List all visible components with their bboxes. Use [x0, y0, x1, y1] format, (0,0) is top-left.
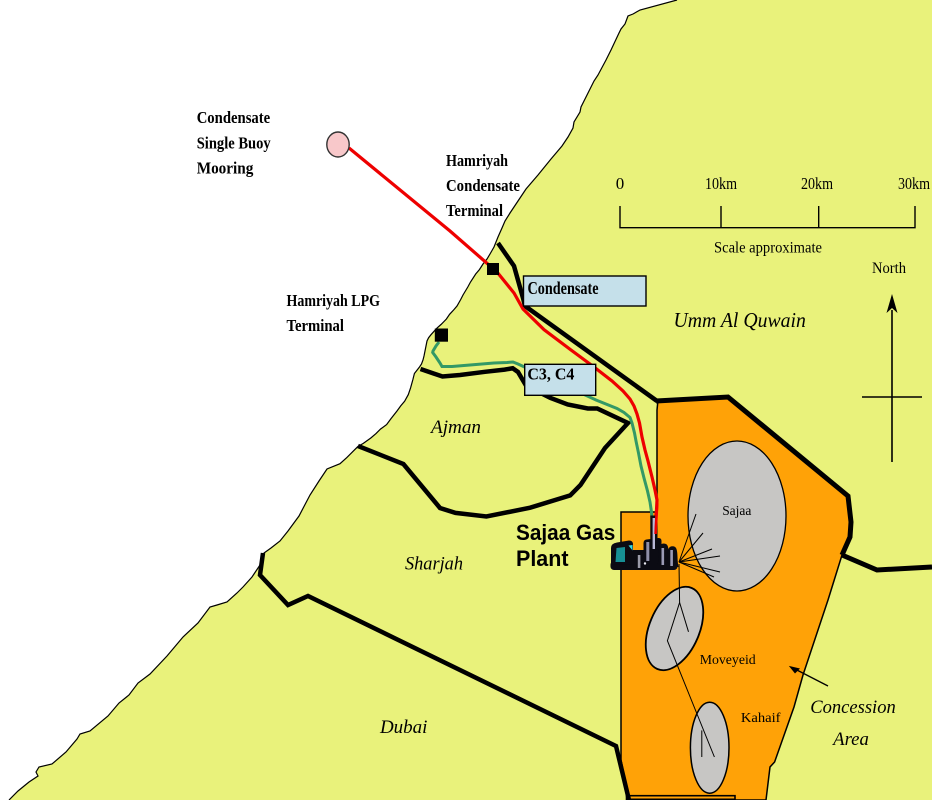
svg-text:C3, C4: C3, C4	[527, 365, 574, 384]
svg-text:Umm Al Quwain: Umm Al Quwain	[673, 308, 806, 332]
svg-text:Area: Area	[831, 729, 869, 750]
svg-text:30km: 30km	[898, 174, 930, 193]
svg-text:Moveyeid: Moveyeid	[700, 653, 756, 668]
svg-text:Ajman: Ajman	[429, 417, 481, 438]
svg-text:Plant: Plant	[516, 546, 569, 571]
svg-text:Hamriyah: Hamriyah	[446, 151, 508, 170]
svg-text:Condensate: Condensate	[528, 278, 599, 298]
svg-text:North: North	[872, 260, 906, 277]
svg-text:Mooring: Mooring	[197, 159, 254, 178]
svg-text:20km: 20km	[801, 174, 833, 193]
svg-text:Sajaa Gas: Sajaa Gas	[516, 520, 615, 545]
svg-text:0: 0	[616, 174, 625, 193]
svg-text:10km: 10km	[705, 174, 737, 193]
svg-text:Condensate: Condensate	[197, 108, 271, 127]
svg-text:Hamriyah LPG: Hamriyah LPG	[287, 291, 381, 310]
svg-text:Kahaif: Kahaif	[741, 711, 781, 726]
svg-text:Scale approximate: Scale approximate	[714, 240, 822, 257]
svg-text:Sharjah: Sharjah	[405, 554, 463, 575]
svg-text:Dubai: Dubai	[379, 717, 428, 738]
svg-text:Concession: Concession	[810, 697, 896, 718]
svg-text:Condensate: Condensate	[446, 176, 520, 195]
svg-text:Terminal: Terminal	[446, 201, 503, 220]
svg-text:Sajaa: Sajaa	[722, 504, 752, 519]
svg-text:Single Buoy: Single Buoy	[197, 134, 271, 153]
svg-text:Terminal: Terminal	[287, 316, 345, 335]
